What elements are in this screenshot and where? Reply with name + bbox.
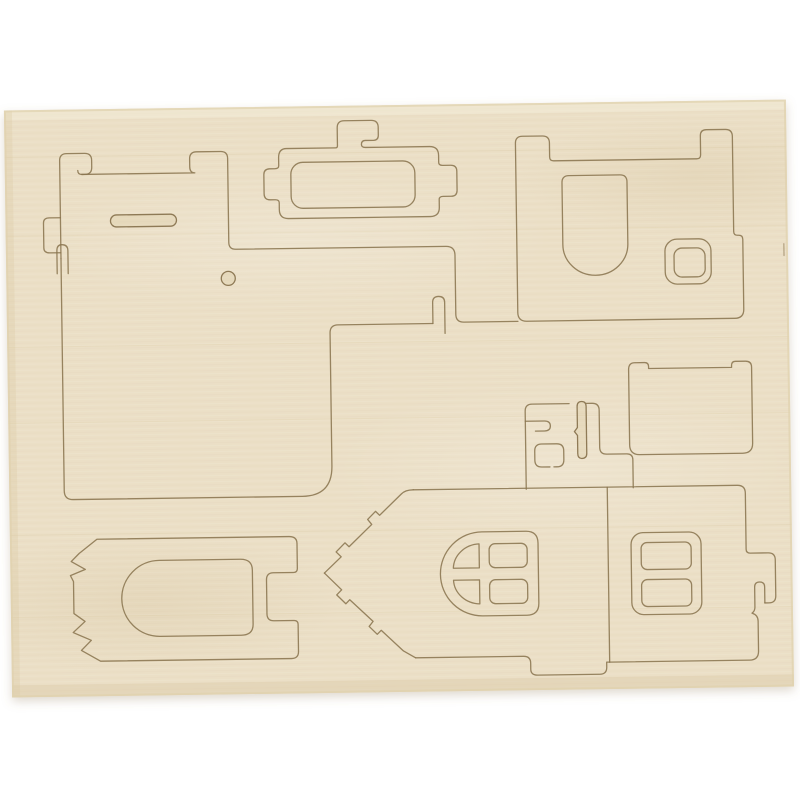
wood-grain-texture (0, 98, 800, 698)
plywood-sheet-photo (0, 0, 800, 800)
wood-board (0, 98, 800, 698)
pill-slot (110, 214, 176, 227)
laser-cut-sheet-illustration (0, 0, 800, 800)
round-hole (221, 271, 235, 285)
